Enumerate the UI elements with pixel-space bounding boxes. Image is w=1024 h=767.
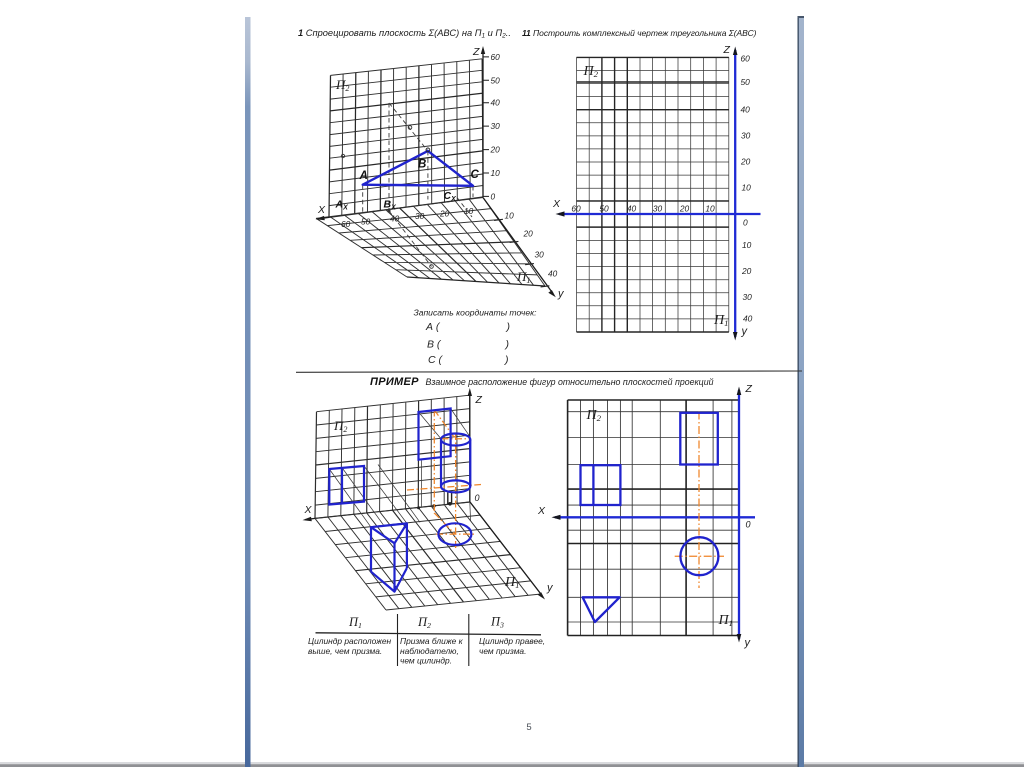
svg-text:y: y	[744, 637, 752, 649]
svg-text:0: 0	[743, 218, 748, 228]
svg-text:y: y	[546, 582, 554, 594]
svg-text:ПРИМЕР: ПРИМЕР	[370, 376, 419, 388]
svg-text:50: 50	[741, 77, 751, 87]
svg-text:П3: П3	[490, 615, 504, 630]
svg-text:20: 20	[523, 229, 534, 239]
svg-text:20: 20	[741, 266, 752, 276]
svg-text:20: 20	[679, 203, 690, 213]
svg-text:y: y	[741, 326, 749, 338]
svg-text:X: X	[552, 198, 561, 210]
svg-text:Призма ближе к: Призма ближе к	[400, 636, 464, 646]
svg-text:Z: Z	[745, 383, 753, 395]
svg-text:Z: Z	[723, 44, 731, 56]
svg-text:чем цилиндр.: чем цилиндр.	[400, 655, 452, 665]
svg-text:BX: BX	[384, 199, 398, 212]
svg-text:20: 20	[439, 209, 450, 219]
svg-text:30: 30	[743, 292, 753, 302]
svg-text:П1: П1	[516, 269, 530, 285]
svg-text:0: 0	[475, 493, 480, 503]
svg-text:40: 40	[627, 203, 637, 213]
svg-text:60: 60	[341, 219, 351, 229]
svg-text:1 Спроецировать плоскость Σ(АВ: 1 Спроецировать плоскость Σ(АВС) на П1 и…	[298, 28, 511, 40]
svg-text:40: 40	[741, 105, 751, 115]
svg-text:50: 50	[491, 75, 501, 85]
svg-text:10: 10	[505, 211, 515, 221]
svg-text:П1: П1	[713, 313, 728, 328]
svg-text:выше, чем призма.: выше, чем призма.	[308, 646, 382, 656]
svg-text:60: 60	[741, 54, 751, 64]
svg-text:0: 0	[491, 191, 496, 201]
svg-text:П2: П2	[333, 418, 347, 434]
svg-text:30: 30	[415, 211, 425, 221]
svg-text:): )	[504, 339, 510, 351]
svg-text:X: X	[317, 204, 326, 216]
svg-text:10: 10	[742, 183, 752, 193]
svg-text:40: 40	[743, 314, 753, 324]
svg-text:П1: П1	[348, 615, 362, 630]
svg-text:30: 30	[535, 250, 545, 260]
svg-text:10: 10	[464, 206, 474, 216]
svg-text:Цилиндр расположен: Цилиндр расположен	[308, 636, 392, 646]
svg-text:y: y	[557, 288, 565, 300]
svg-text:AX: AX	[335, 199, 350, 212]
svg-text:30: 30	[491, 121, 501, 131]
svg-text:X: X	[537, 505, 546, 517]
svg-text:B: B	[418, 159, 426, 171]
svg-text:): )	[503, 354, 509, 366]
svg-text:Взаимное расположение фигур от: Взаимное расположение фигур относительно…	[426, 377, 714, 387]
svg-text:11 Построить комплексный черте: 11 Построить комплексный чертеж треуголь…	[522, 28, 757, 38]
svg-text:Z: Z	[472, 46, 480, 58]
svg-text:П2: П2	[335, 77, 349, 93]
svg-text:В (: В (	[427, 339, 442, 351]
svg-text:40: 40	[548, 269, 558, 279]
svg-text:П2: П2	[417, 615, 431, 630]
svg-text:20: 20	[740, 157, 751, 167]
svg-text:П2: П2	[583, 64, 599, 79]
svg-text:C: C	[471, 169, 480, 181]
svg-text:CX: CX	[444, 190, 458, 203]
svg-text:40: 40	[491, 98, 501, 108]
svg-text:10: 10	[491, 168, 501, 178]
svg-text:А (: А (	[425, 321, 441, 333]
svg-text:30: 30	[653, 203, 663, 213]
svg-text:Записать координаты точек:: Записать координаты точек:	[414, 308, 538, 318]
svg-text:0: 0	[746, 520, 751, 530]
svg-text:10: 10	[705, 203, 715, 213]
svg-text:20: 20	[490, 145, 501, 155]
svg-text:X: X	[304, 504, 313, 516]
svg-text:50: 50	[361, 217, 371, 227]
svg-text:5: 5	[526, 722, 531, 733]
svg-text:П1: П1	[504, 575, 519, 590]
svg-text:П1: П1	[718, 613, 733, 628]
svg-text:Цилиндр правее,: Цилиндр правее,	[479, 636, 545, 646]
svg-text:П2: П2	[586, 408, 602, 423]
svg-text:чем призма.: чем призма.	[479, 646, 526, 656]
svg-text:Z: Z	[475, 394, 483, 406]
svg-text:A: A	[359, 170, 368, 182]
svg-text:10: 10	[742, 240, 752, 250]
svg-text:): )	[505, 321, 511, 333]
svg-text:30: 30	[741, 131, 751, 141]
svg-text:60: 60	[571, 203, 581, 213]
svg-text:С (: С (	[428, 354, 444, 366]
svg-text:наблюдателю,: наблюдателю,	[400, 646, 459, 656]
svg-text:60: 60	[491, 52, 501, 62]
svg-text:50: 50	[599, 203, 609, 213]
